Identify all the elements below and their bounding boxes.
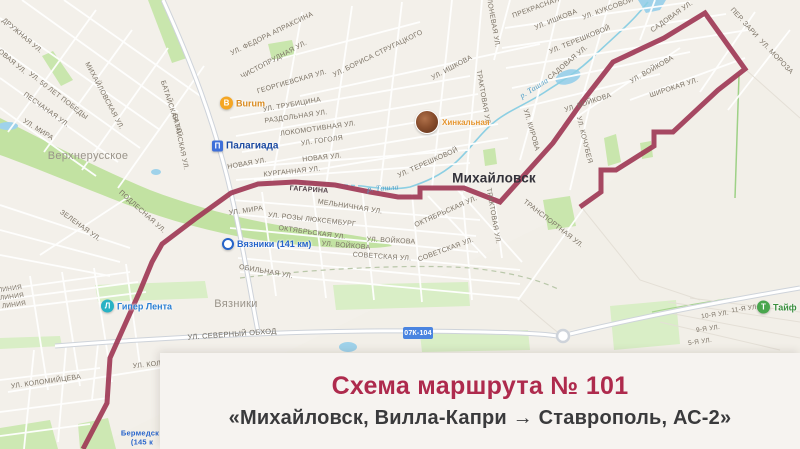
poi-label: Палагиада [226, 141, 278, 152]
poi-label: Burum [236, 98, 265, 108]
poi-icon [222, 238, 234, 250]
poi-label: Хинкальная [442, 118, 490, 127]
poi-icon [415, 110, 439, 134]
road-number-badge: 07К-104 [403, 327, 433, 339]
poi-marker[interactable]: ЛГипер Лента [101, 300, 172, 313]
poi-label: Тайф [773, 302, 797, 312]
poi-marker[interactable]: ТТайф [757, 301, 797, 314]
route-info-panel: Схема маршрута № 101 «Михайловск, Вилла-… [160, 353, 800, 449]
poi-marker[interactable]: Хинкальная [415, 110, 490, 134]
poi-icon: Т [757, 301, 770, 314]
poi-label: Гипер Лента [117, 301, 172, 311]
poi-marker[interactable]: ППалагиада [212, 141, 278, 152]
poi-icon: Л [101, 300, 114, 313]
poi-icon: П [212, 141, 223, 152]
route-scheme-title: Схема маршрута № 101 [332, 372, 629, 401]
poi-label: Вязники (141 км) [237, 239, 311, 249]
poi-marker[interactable]: BBurum [220, 97, 265, 110]
poi-marker[interactable]: Вязники (141 км) [222, 238, 311, 250]
map-container[interactable]: Дружная ул.овая ул.Михайловская ул.ул. 5… [0, 0, 800, 449]
poi-icon: B [220, 97, 233, 110]
route-endpoints-subtitle: «Михайловск, Вилла-Капри → Ставрополь, А… [229, 407, 732, 430]
